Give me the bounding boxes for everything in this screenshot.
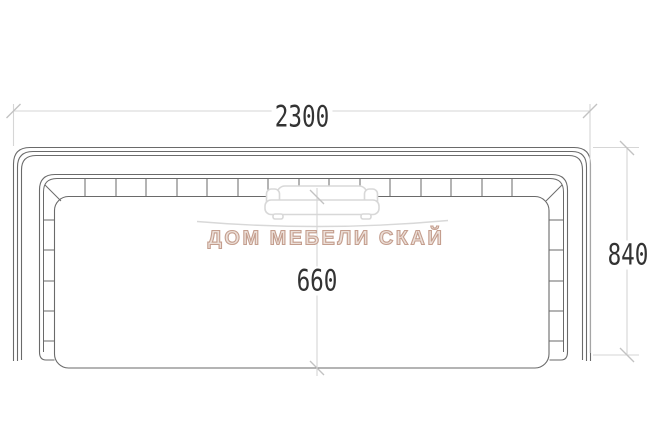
cushion-dividers-left <box>44 220 54 341</box>
watermark-swoosh <box>197 221 448 227</box>
depth-dimension-label: 840 <box>604 241 651 270</box>
seat-depth-dimension-label: 660 <box>293 267 340 296</box>
watermark-logo <box>197 186 448 227</box>
sofa-top-view-drawing <box>0 0 652 435</box>
technical-drawing-canvas: 2300 840 660 ДОМ МЕБЕЛИ СКАЙ <box>0 0 652 435</box>
watermark-brand-text: ДОМ МЕБЕЛИ СКАЙ <box>208 228 445 251</box>
width-dimension-label: 2300 <box>272 103 333 132</box>
corner-miter-right <box>546 185 562 201</box>
cushion-dividers-right <box>549 220 563 341</box>
frame-outline <box>14 148 591 362</box>
corner-miter-left <box>45 185 61 201</box>
